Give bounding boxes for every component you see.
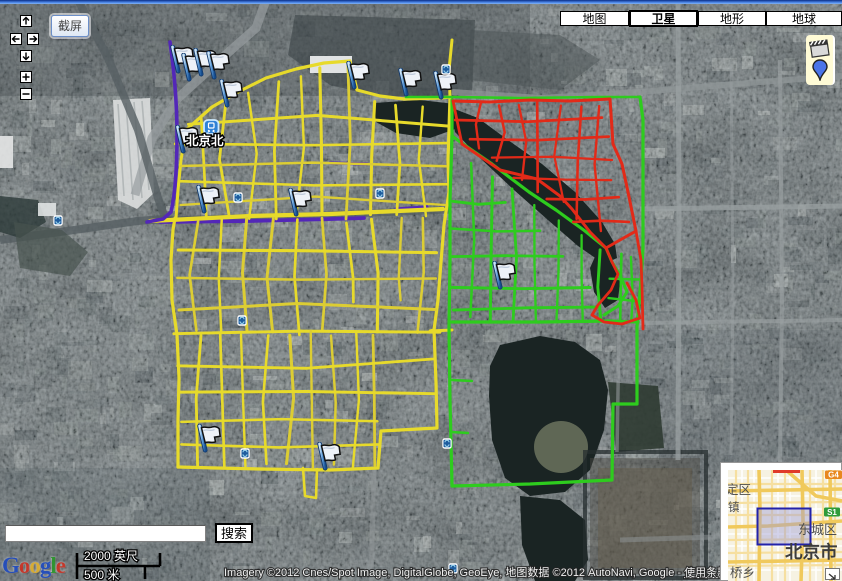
svg-text:S1: S1 bbox=[827, 508, 837, 517]
svg-text:北京北: 北京北 bbox=[186, 133, 224, 148]
svg-text:北京市: 北京市 bbox=[785, 542, 838, 562]
svg-text:桥乡: 桥乡 bbox=[730, 566, 755, 580]
svg-text:2000 英尺: 2000 英尺 bbox=[84, 549, 138, 563]
svg-text:G4: G4 bbox=[828, 471, 839, 480]
svg-text:镇: 镇 bbox=[728, 500, 740, 514]
svg-text:东城区: 东城区 bbox=[798, 522, 837, 537]
svg-text:500 米: 500 米 bbox=[84, 568, 119, 581]
svg-text:定区: 定区 bbox=[728, 482, 751, 497]
svg-text:Imagery ©2012 Cnes/Spot Image,: Imagery ©2012 Cnes/Spot Image, DigitalGl… bbox=[224, 565, 728, 579]
